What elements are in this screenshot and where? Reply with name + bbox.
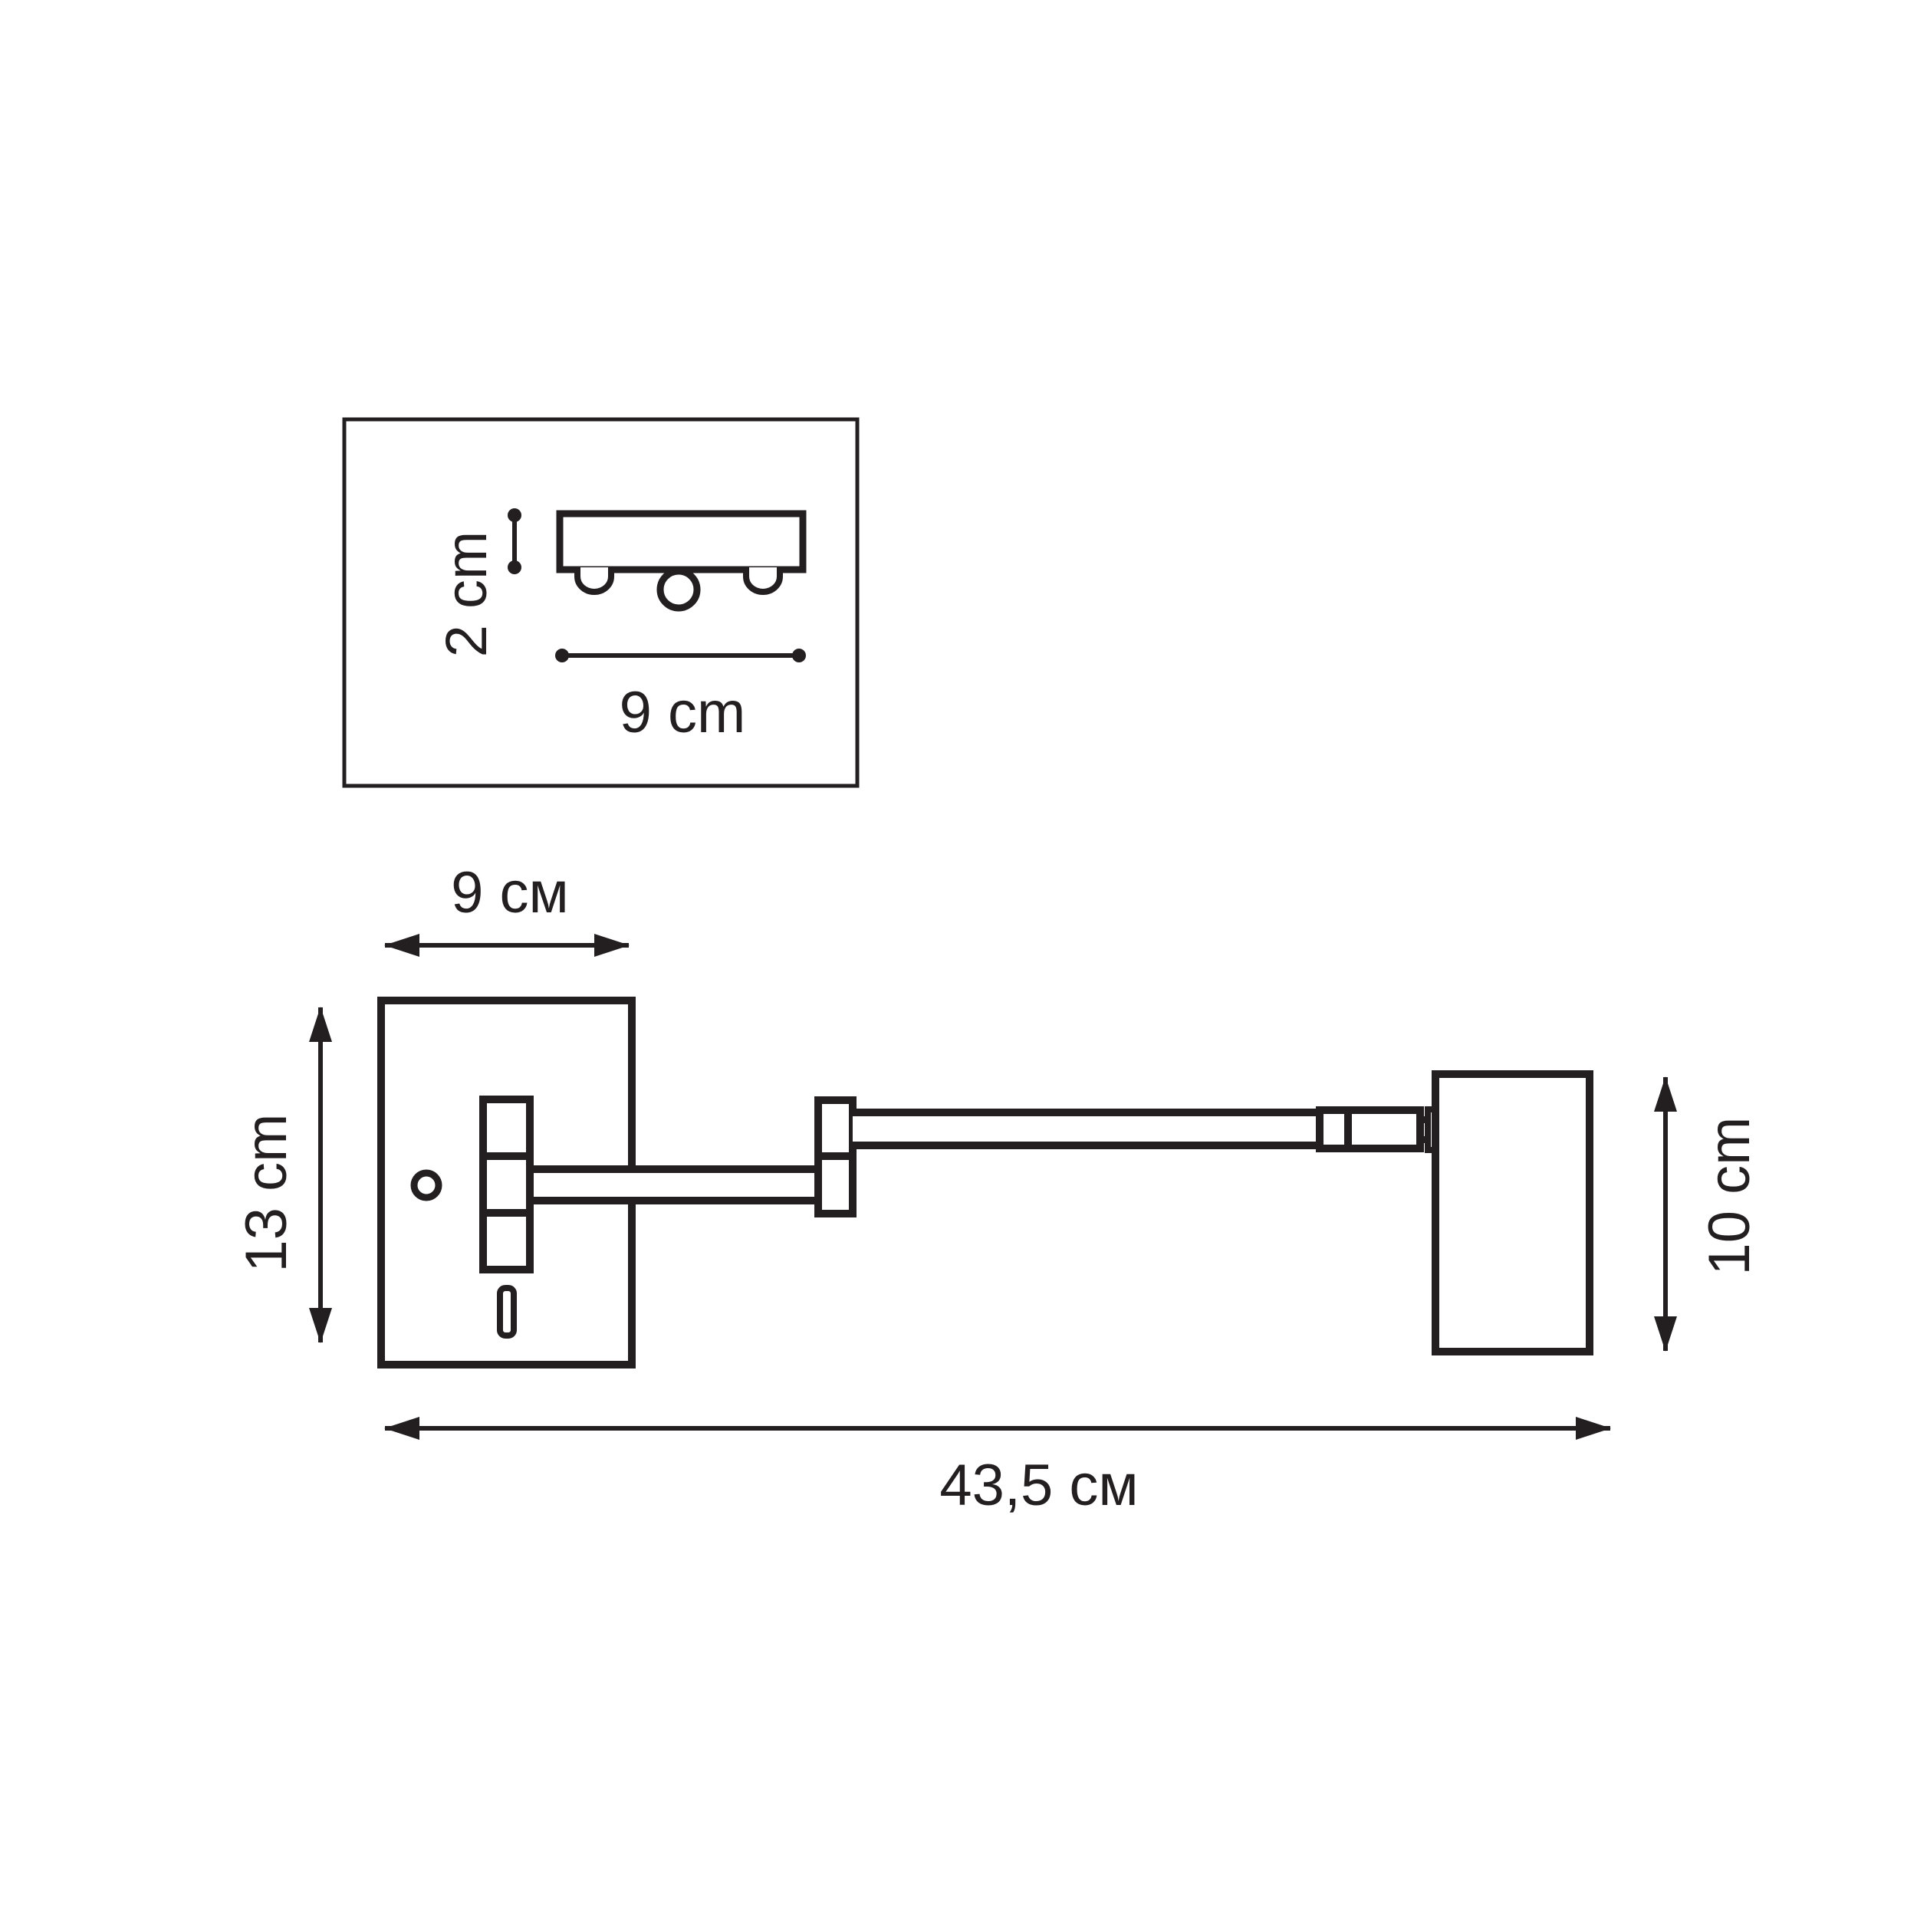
- inset-width-dim-dot-right: [792, 649, 806, 662]
- main-drawing-group: [381, 1001, 1590, 1365]
- canopy-top-view: [560, 514, 803, 570]
- arm-2-body: [853, 1116, 1320, 1142]
- lamp-head: [1435, 1074, 1590, 1352]
- switch-slot: [500, 1288, 514, 1336]
- canopy-center-hole: [660, 571, 697, 608]
- inset-width-dimension-label: 9 cm: [620, 680, 746, 745]
- arm-1-body: [530, 1173, 818, 1197]
- inset-panel-group: 2 cm 9 cm: [344, 419, 857, 786]
- inset-width-dim-dot-left: [555, 649, 569, 662]
- plate-height-dimension-label: 13 cm: [234, 1114, 299, 1273]
- lamp-dimension-drawing: 2 cm 9 cm: [0, 0, 1917, 1932]
- head-height-dimension-label: 10 cm: [1697, 1117, 1762, 1276]
- arm-bracket: [483, 1099, 530, 1270]
- inset-height-dim-dot-bottom: [508, 560, 521, 574]
- canopy-mount-bump-left: [577, 567, 611, 592]
- plate-width-dimension-label: 9 см: [451, 860, 569, 925]
- swivel-joint: [1320, 1110, 1420, 1148]
- inset-height-dimension-label: 2 cm: [434, 531, 499, 658]
- total-length-dimension-label: 43,5 см: [939, 1453, 1138, 1518]
- canopy-mount-bump-right: [746, 567, 780, 592]
- inset-panel-border: [344, 419, 857, 786]
- technical-drawing-canvas: 2 cm 9 cm: [0, 0, 1917, 1932]
- screw-hole: [414, 1173, 439, 1198]
- inset-height-dim-dot-top: [508, 508, 521, 522]
